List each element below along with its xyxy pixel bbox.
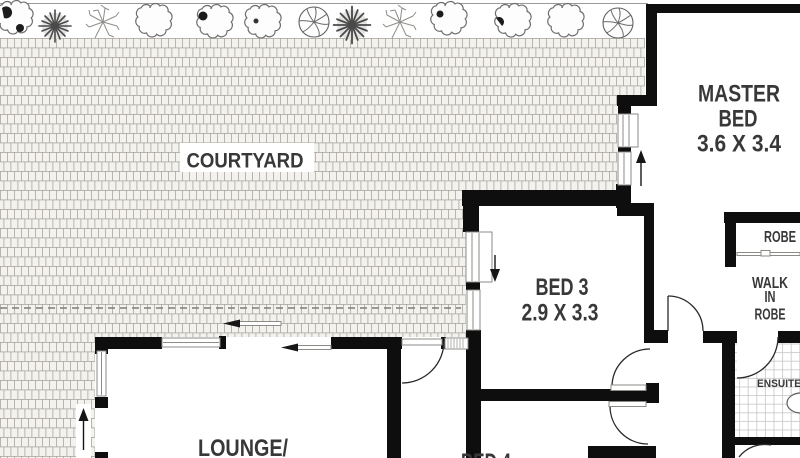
svg-text:ROBE: ROBE xyxy=(755,307,786,324)
svg-text:ENSUITE: ENSUITE xyxy=(757,378,800,390)
svg-text:LOUNGE/: LOUNGE/ xyxy=(198,435,288,458)
svg-text:3.6 X 3.4: 3.6 X 3.4 xyxy=(697,131,782,158)
svg-text:IN: IN xyxy=(765,289,776,306)
svg-text:BED 4: BED 4 xyxy=(461,449,511,458)
svg-text:MASTER: MASTER xyxy=(698,81,780,108)
svg-text:COURTYARD: COURTYARD xyxy=(187,150,304,173)
svg-text:BED 3: BED 3 xyxy=(536,274,589,301)
svg-text:2.9 X 3.3: 2.9 X 3.3 xyxy=(522,300,599,327)
svg-text:ROBE: ROBE xyxy=(764,229,796,246)
svg-text:BED: BED xyxy=(719,106,758,133)
